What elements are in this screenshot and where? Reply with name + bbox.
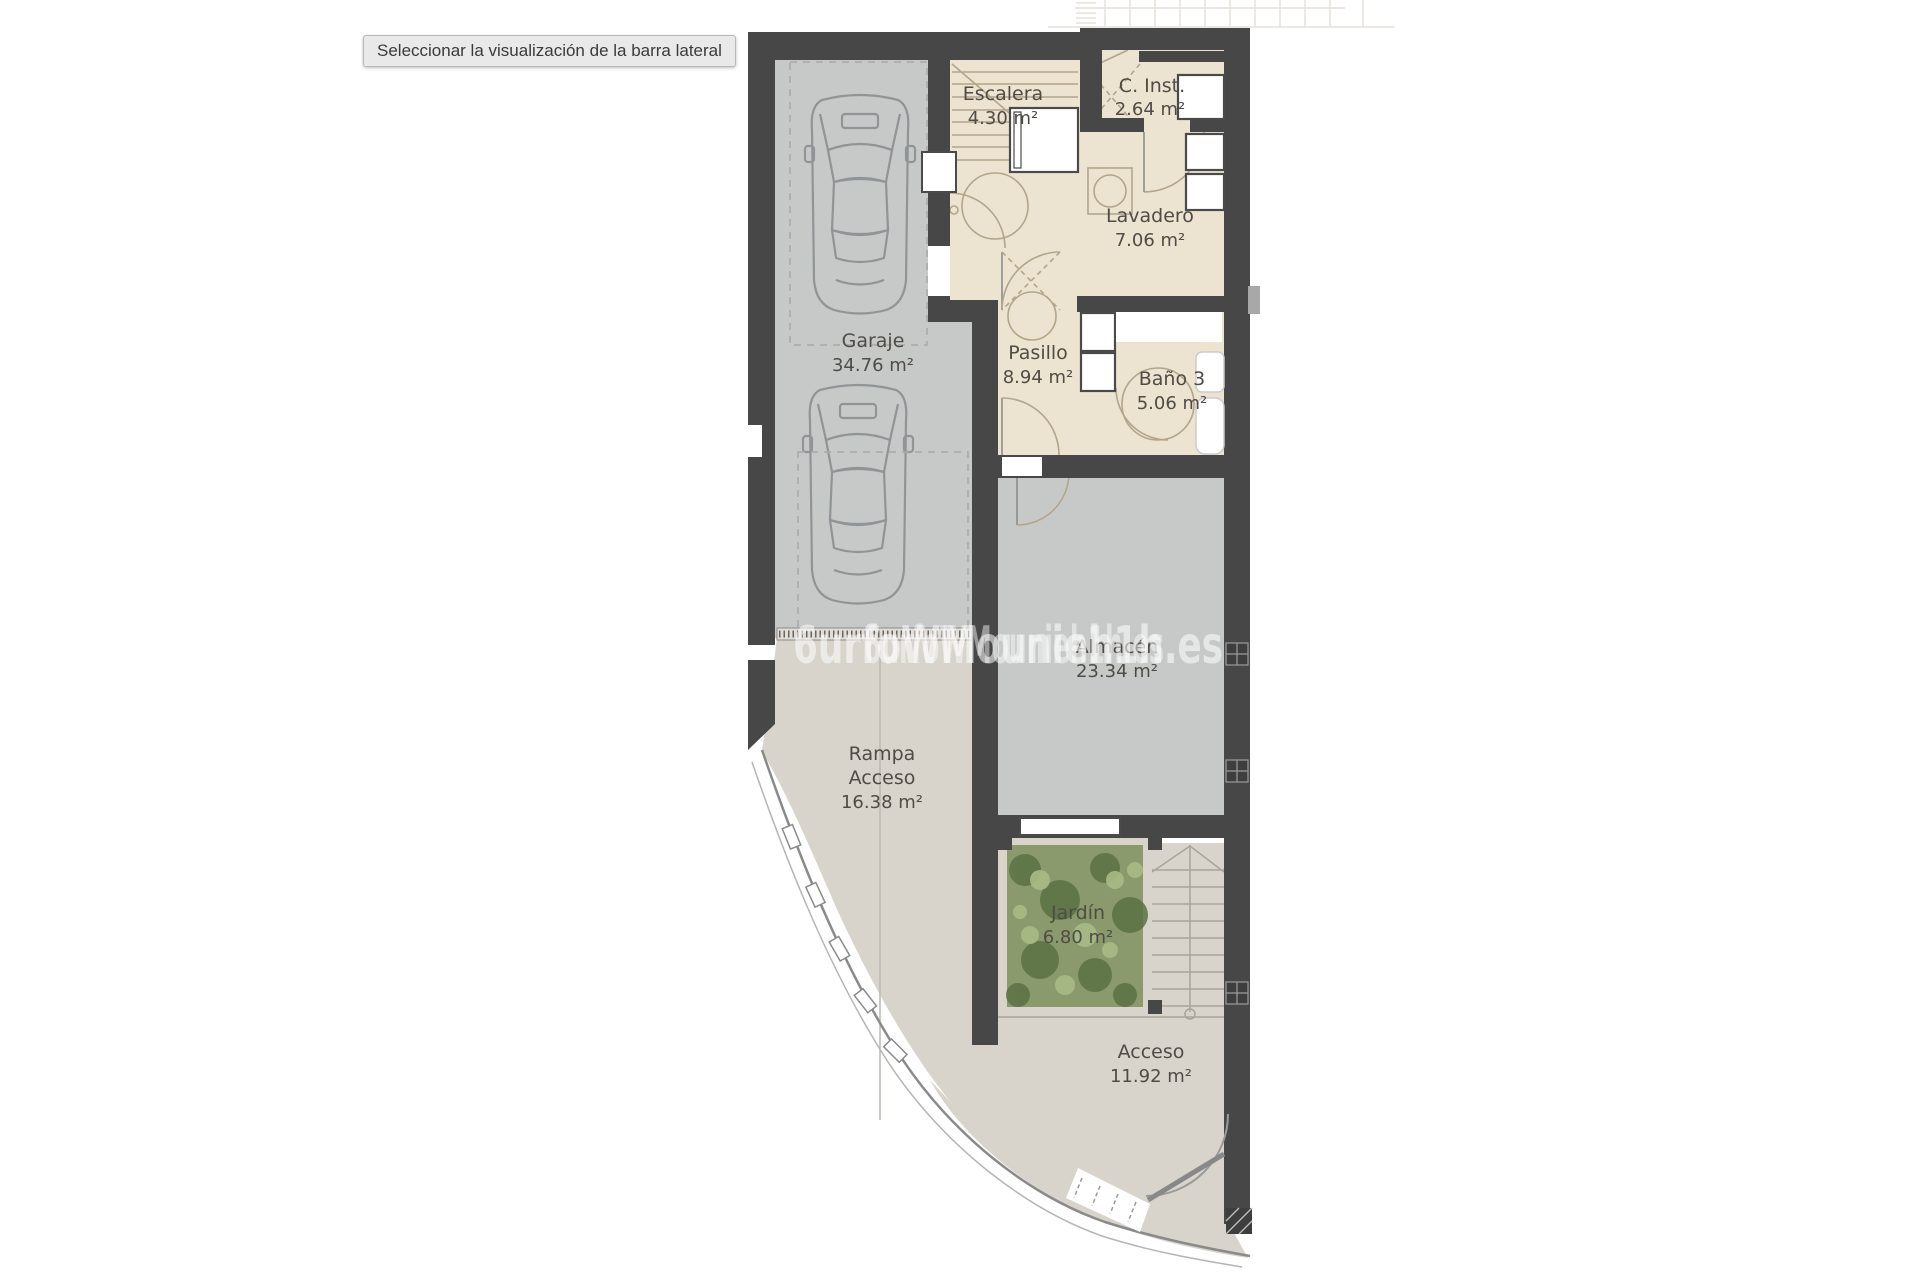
sidebar-view-tooltip: Seleccionar la visualización de la barra… xyxy=(363,35,736,67)
garage-wall-window xyxy=(922,152,956,192)
rampa-paving xyxy=(762,638,972,1125)
label-pasillo-area: 8.94 m² xyxy=(1003,367,1074,388)
duct-shaft-box-2 xyxy=(1081,353,1115,391)
label-garaje-name: Garaje xyxy=(842,330,905,352)
boundary-corner-post xyxy=(1226,1208,1252,1234)
label-escalera-name: Escalera xyxy=(963,83,1043,105)
label-garaje-area: 34.76 m² xyxy=(832,355,914,376)
bano3-counter xyxy=(1116,312,1222,342)
label-lavadero-area: 7.06 m² xyxy=(1115,230,1186,251)
duct-shaft-box-1 xyxy=(1081,313,1115,351)
label-escalera-area: 4.30 m² xyxy=(968,108,1039,129)
floorplan-image: Escalera 4.30 m² C. Inst. 2.64 m² Lavade… xyxy=(0,0,1920,1280)
label-cinst-area: 2.64 m² xyxy=(1115,99,1186,120)
label-jardin-area: 6.80 m² xyxy=(1043,927,1114,948)
label-cinst-name: C. Inst. xyxy=(1119,75,1185,97)
stairs-paving xyxy=(1150,843,1224,1017)
lavadero-washer-1 xyxy=(1186,134,1224,170)
label-rampa-area: 16.38 m² xyxy=(841,792,923,813)
watermark-text-narrow: 6urfoWMounieh1h.es xyxy=(864,616,1164,676)
label-acceso-area: 11.92 m² xyxy=(1110,1066,1192,1087)
label-bano3-name: Baño 3 xyxy=(1139,368,1205,390)
label-rampa-line1: Rampa xyxy=(849,743,916,765)
faint-upper-floor-lines xyxy=(1048,0,1395,27)
label-bano3-area: 5.06 m² xyxy=(1137,393,1208,414)
label-lavadero-name: Lavadero xyxy=(1106,205,1194,227)
screenshot-stage: Seleccionar la visualización de la barra… xyxy=(0,0,1920,1280)
garden xyxy=(1006,845,1148,1007)
almacen-garden-window xyxy=(1020,818,1120,835)
label-jardin-name: Jardín xyxy=(1050,902,1105,924)
watermark: 6urfoWMounieh1h.es 6urfoWMounieh1h.es xyxy=(793,616,1223,676)
label-rampa-line2: Acceso xyxy=(849,767,916,789)
label-pasillo-name: Pasillo xyxy=(1008,342,1068,364)
label-acceso-name: Acceso xyxy=(1118,1041,1185,1063)
